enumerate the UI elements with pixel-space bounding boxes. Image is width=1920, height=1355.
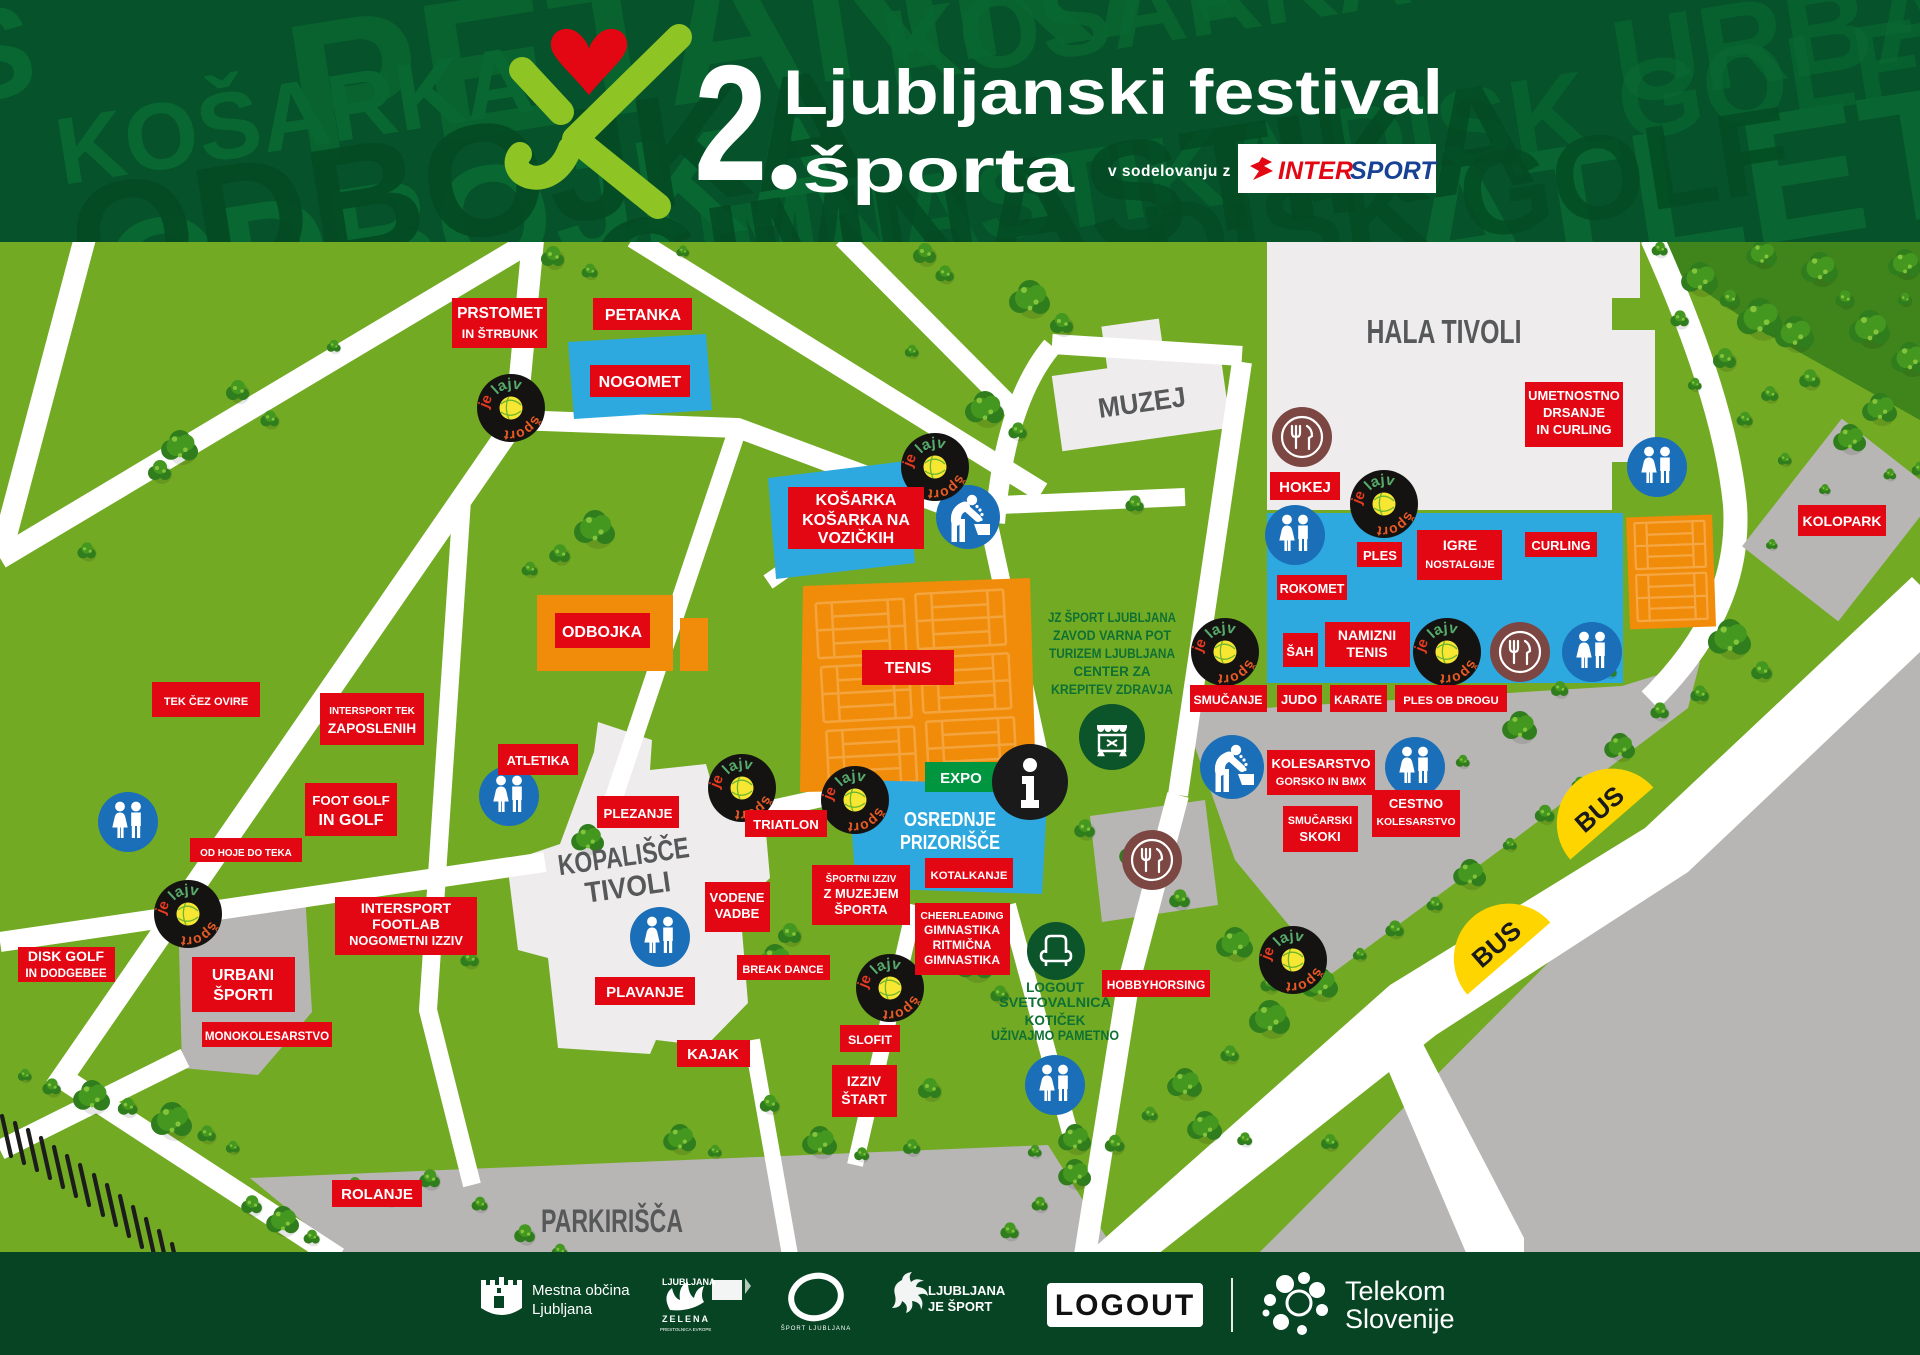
svg-text:KARATE: KARATE <box>1334 694 1382 707</box>
svg-text:IN CURLING: IN CURLING <box>1536 422 1611 437</box>
svg-text:TURIZEM LJUBLJANA: TURIZEM LJUBLJANA <box>1049 646 1175 661</box>
svg-text:INTER: INTER <box>1278 157 1353 185</box>
svg-text:NOSTALGIJE: NOSTALGIJE <box>1425 559 1494 571</box>
svg-text:IN ŠTRBUNK: IN ŠTRBUNK <box>462 326 538 341</box>
svg-text:Ljubljana: Ljubljana <box>532 1301 593 1318</box>
svg-text:NAMIZNI: NAMIZNI <box>1338 627 1396 643</box>
svg-text:INTERSPORT: INTERSPORT <box>361 900 452 916</box>
svg-text:ŠTART: ŠTART <box>841 1090 887 1107</box>
svg-text:Z MUZEJEM: Z MUZEJEM <box>823 886 898 901</box>
svg-text:KAJAK: KAJAK <box>687 1046 739 1063</box>
svg-text:LOGOUT: LOGOUT <box>1055 1289 1195 1322</box>
svg-text:CESTNO: CESTNO <box>1389 796 1443 811</box>
svg-text:PLES: PLES <box>1363 548 1397 563</box>
svg-text:LJUBLJANA: LJUBLJANA <box>928 1283 1006 1298</box>
svg-text:KOŠARKA: KOŠARKA <box>816 490 897 509</box>
svg-text:PLES OB DROGU: PLES OB DROGU <box>1403 695 1499 707</box>
svg-text:NOGOMET: NOGOMET <box>599 374 682 391</box>
svg-text:KREPITEV ZDRAVJA: KREPITEV ZDRAVJA <box>1051 682 1173 697</box>
svg-text:PRESTOLNICA EVROPE: PRESTOLNICA EVROPE <box>660 1327 711 1332</box>
svg-text:UŽIVAJMO PAMETNO: UŽIVAJMO PAMETNO <box>991 1028 1119 1043</box>
svg-text:DISK GOLF: DISK GOLF <box>28 948 105 964</box>
svg-text:EXPO: EXPO <box>940 770 982 787</box>
svg-text:v sodelovanju z: v sodelovanju z <box>1108 163 1231 180</box>
svg-text:Slovenije: Slovenije <box>1345 1304 1455 1334</box>
svg-text:PLEZANJE: PLEZANJE <box>604 806 673 821</box>
svg-text:TENIS: TENIS <box>1346 644 1387 660</box>
svg-text:NOGOMETNI IZZIV: NOGOMETNI IZZIV <box>349 933 463 948</box>
svg-text:2: 2 <box>694 31 767 215</box>
svg-text:OD HOJE DO TEKA: OD HOJE DO TEKA <box>200 848 292 859</box>
svg-text:športa: športa <box>802 136 1075 206</box>
svg-text:URBANI: URBANI <box>212 967 274 984</box>
svg-text:VODENE: VODENE <box>710 890 765 905</box>
svg-text:VADBE: VADBE <box>715 906 760 921</box>
svg-text:TENIS: TENIS <box>884 660 931 677</box>
svg-text:FOOT GOLF: FOOT GOLF <box>312 793 390 808</box>
svg-text:PETANKA: PETANKA <box>605 307 682 324</box>
svg-text:IN DODGEBEE: IN DODGEBEE <box>25 967 106 980</box>
svg-text:ŠPORTA: ŠPORTA <box>834 902 888 917</box>
svg-text:OSREDNJE: OSREDNJE <box>904 809 996 831</box>
svg-text:CENTER ZA: CENTER ZA <box>1073 664 1151 679</box>
svg-text:HALA TIVOLI: HALA TIVOLI <box>1367 313 1522 350</box>
svg-text:IGRE: IGRE <box>1443 537 1477 553</box>
svg-text:JZ ŠPORT LJUBLJANA: JZ ŠPORT LJUBLJANA <box>1048 610 1176 625</box>
svg-text:ROKOMET: ROKOMET <box>1280 582 1345 596</box>
svg-text:LJUBLJANA: LJUBLJANA <box>662 1277 716 1287</box>
svg-text:Telekom: Telekom <box>1345 1276 1446 1306</box>
svg-text:GIMNASTIKA: GIMNASTIKA <box>924 953 1000 967</box>
svg-text:PARKIRIŠČA: PARKIRIŠČA <box>541 1203 683 1239</box>
svg-text:ŠPORTI: ŠPORTI <box>213 985 273 1004</box>
svg-text:ZAPOSLENIH: ZAPOSLENIH <box>328 721 416 736</box>
svg-text:HOKEJ: HOKEJ <box>1279 479 1331 496</box>
svg-text:HOBBYHORSING: HOBBYHORSING <box>1107 978 1205 992</box>
svg-text:Ljubljanski festival: Ljubljanski festival <box>783 58 1443 128</box>
svg-text:GIMNASTIKA: GIMNASTIKA <box>924 923 1000 937</box>
svg-text:KOLESARSTVO: KOLESARSTVO <box>1272 756 1371 771</box>
svg-text:Mestna občina: Mestna občina <box>532 1282 630 1299</box>
svg-text:LOGOUT: LOGOUT <box>1026 980 1084 995</box>
svg-text:GORSKO IN BMX: GORSKO IN BMX <box>1276 776 1367 788</box>
svg-text:INTERSPORT TEK: INTERSPORT TEK <box>329 706 414 717</box>
svg-text:MONOKOLESARSTVO: MONOKOLESARSTVO <box>205 1030 329 1043</box>
svg-text:DRSANJE: DRSANJE <box>1543 405 1605 420</box>
svg-text:ROLANJE: ROLANJE <box>341 1186 413 1203</box>
svg-text:TRIATLON: TRIATLON <box>753 817 819 832</box>
svg-text:ŠPORTNI IZZIV: ŠPORTNI IZZIV <box>826 873 897 885</box>
svg-text:KOLOPARK: KOLOPARK <box>1802 513 1881 529</box>
svg-text:IN GOLF: IN GOLF <box>319 812 384 829</box>
svg-text:CHEERLEADING: CHEERLEADING <box>920 911 1003 922</box>
svg-text:ZELENA: ZELENA <box>662 1314 710 1324</box>
svg-text:JUDO: JUDO <box>1281 692 1317 707</box>
svg-text:VOZIČKIH: VOZIČKIH <box>818 528 894 547</box>
svg-text:ŠPORT LJUBLJANA: ŠPORT LJUBLJANA <box>781 1325 851 1332</box>
svg-text:SPORT: SPORT <box>1350 157 1438 185</box>
svg-text:PRIZORIŠČE: PRIZORIŠČE <box>900 830 1000 854</box>
svg-text:KOŠARKA NA: KOŠARKA NA <box>802 510 910 529</box>
svg-text:BREAK DANCE: BREAK DANCE <box>742 964 823 976</box>
svg-text:SVETOVALNICA: SVETOVALNICA <box>999 995 1111 1010</box>
svg-text:IZZIV: IZZIV <box>847 1073 882 1089</box>
svg-text:SMUČANJE: SMUČANJE <box>1193 692 1262 707</box>
svg-text:UMETNOSTNO: UMETNOSTNO <box>1528 388 1620 403</box>
svg-text:KOTIČEK: KOTIČEK <box>1025 1013 1086 1028</box>
svg-text:TEK ČEZ OVIRE: TEK ČEZ OVIRE <box>164 695 248 708</box>
svg-text:FOOTLAB: FOOTLAB <box>372 916 440 932</box>
svg-text:KOLESARSTVO: KOLESARSTVO <box>1376 817 1455 828</box>
svg-text:ATLETIKA: ATLETIKA <box>507 753 570 768</box>
svg-text:JE ŠPORT: JE ŠPORT <box>928 1299 992 1314</box>
svg-text:ODBOJKA: ODBOJKA <box>562 624 642 641</box>
svg-text:PRSTOMET: PRSTOMET <box>457 305 543 322</box>
svg-text:PLAVANJE: PLAVANJE <box>606 984 684 1001</box>
svg-text:CURLING: CURLING <box>1531 538 1590 553</box>
svg-text:SLOFIT: SLOFIT <box>848 1033 892 1047</box>
svg-text:SMUČARSKI: SMUČARSKI <box>1288 814 1352 827</box>
svg-text:RITMIČNA: RITMIČNA <box>933 937 992 952</box>
svg-text:KOTALKANJE: KOTALKANJE <box>931 870 1008 882</box>
svg-text:ZAVOD VARNA POT: ZAVOD VARNA POT <box>1053 628 1172 643</box>
svg-text:SKOKI: SKOKI <box>1299 829 1340 844</box>
svg-text:ŠAH: ŠAH <box>1286 644 1313 659</box>
